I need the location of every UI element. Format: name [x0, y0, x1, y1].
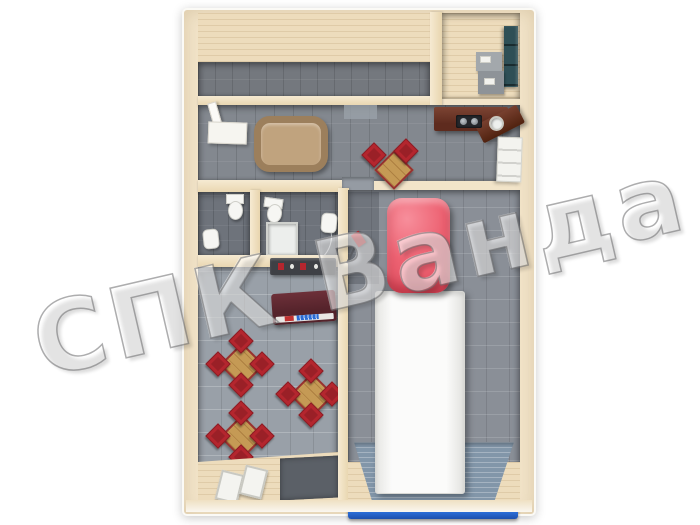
south-outer-wall	[186, 500, 532, 512]
wc-divider-wall	[250, 190, 260, 258]
white-item	[314, 264, 318, 269]
wall-shelf-with-tools	[270, 258, 336, 275]
wash-basin	[202, 228, 220, 250]
kitchen-sink	[489, 116, 504, 131]
workshop-floor	[198, 62, 430, 97]
red-item	[300, 263, 306, 270]
white-cupboard	[496, 137, 523, 183]
sofa	[254, 116, 328, 172]
floorplan-render: СПК Ванда	[0, 0, 700, 525]
burner-icon	[471, 118, 478, 125]
cafe-table-2	[281, 364, 339, 422]
teal-locker-cabinet	[504, 26, 518, 87]
wash-basin	[320, 212, 338, 233]
white-bench	[208, 121, 248, 144]
gray-cabinet-b	[478, 71, 504, 94]
cafe-table-1	[211, 334, 269, 392]
truck-cargo-box	[375, 291, 465, 494]
reception-bar-counter	[271, 290, 337, 325]
paper-sheet	[484, 78, 495, 85]
logo-red-block	[285, 316, 294, 322]
red-item	[278, 263, 284, 270]
truck-cab	[387, 198, 450, 293]
building-shell	[182, 8, 536, 516]
shower-tray	[266, 222, 298, 256]
burner-icon	[460, 118, 467, 125]
toilet-bowl	[228, 201, 243, 220]
cafe-table-3	[211, 406, 269, 464]
workshop-north-wallface	[198, 13, 430, 63]
doorway-threshold	[344, 105, 377, 119]
paper-sheet	[480, 56, 491, 63]
top-rooms-divider-wall	[430, 12, 442, 106]
stove-cooktop	[456, 115, 482, 128]
gray-cabinet-a	[476, 52, 502, 71]
gray-floor-mat	[280, 455, 338, 500]
white-item	[290, 264, 294, 269]
